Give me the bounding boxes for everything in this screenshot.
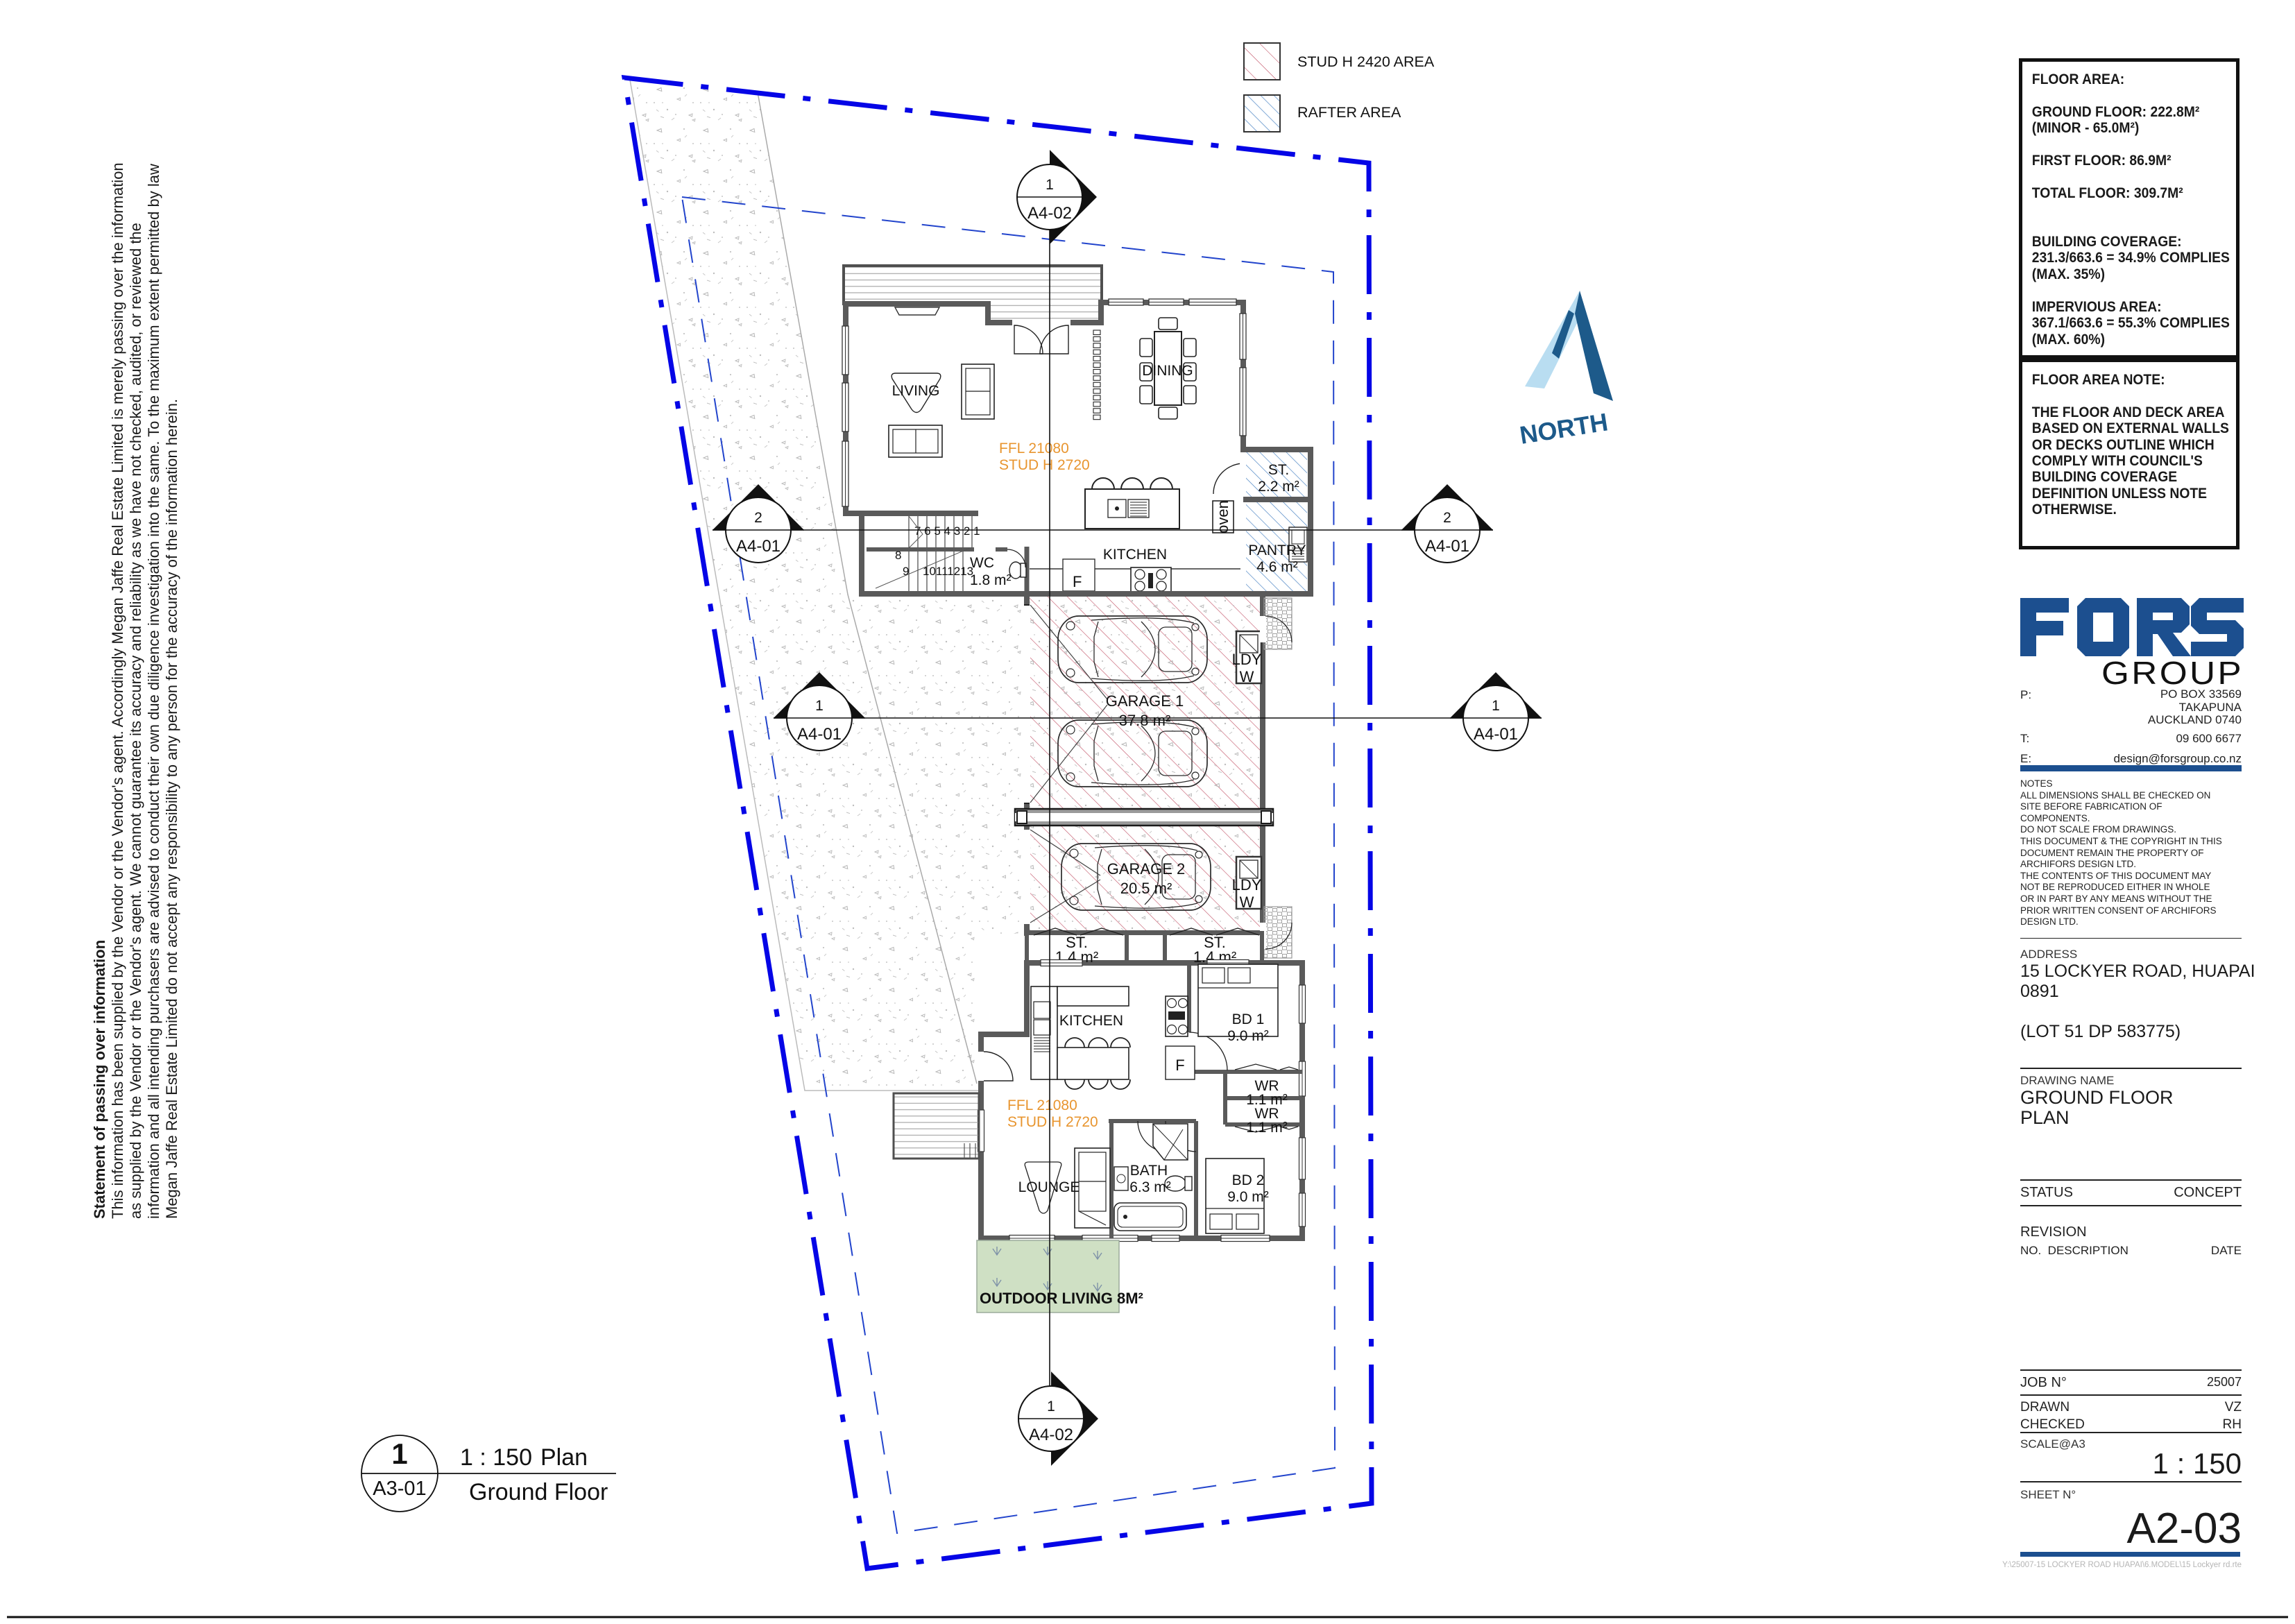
svg-text:KITCHEN: KITCHEN — [1103, 547, 1167, 563]
svg-text:9.0 m²: 9.0 m² — [1227, 1028, 1269, 1044]
svg-text:A4-01: A4-01 — [1474, 725, 1518, 744]
svg-text:STUD H 2720: STUD H 2720 — [1007, 1114, 1098, 1130]
svg-text:1: 1 — [1492, 698, 1500, 714]
svg-text:9.0 m²: 9.0 m² — [1227, 1189, 1269, 1205]
svg-text:2: 2 — [1443, 510, 1451, 526]
svg-text:1.1 m²: 1.1 m² — [1246, 1120, 1288, 1136]
svg-text:GARAGE 1: GARAGE 1 — [1106, 692, 1184, 710]
svg-text:2.2 m²: 2.2 m² — [1258, 479, 1299, 495]
svg-text:FFL 21080: FFL 21080 — [999, 441, 1069, 456]
svg-text:LDY: LDY — [1232, 876, 1262, 894]
svg-text:1: 1 — [391, 1437, 407, 1470]
svg-text:A4-02: A4-02 — [1027, 204, 1072, 223]
svg-text:GROUP: GROUP — [2101, 655, 2244, 691]
svg-text:1: 1 — [1046, 177, 1054, 193]
svg-text:LIVING: LIVING — [892, 383, 940, 399]
svg-text:A3-01: A3-01 — [373, 1478, 426, 1500]
svg-text:A4-01: A4-01 — [736, 537, 780, 556]
svg-text:1: 1 — [815, 698, 824, 714]
svg-text:KITCHEN: KITCHEN — [1059, 1013, 1123, 1029]
svg-text:OUTDOOR LIVING 8M²: OUTDOOR LIVING 8M² — [980, 1290, 1143, 1307]
svg-text:BD 2: BD 2 — [1232, 1172, 1265, 1188]
svg-text:NORTH: NORTH — [1518, 407, 1610, 450]
svg-text:1: 1 — [1047, 1399, 1055, 1414]
svg-text:9: 9 — [903, 565, 909, 578]
svg-text:20.5 m²: 20.5 m² — [1120, 880, 1172, 897]
svg-text:A4-01: A4-01 — [1425, 537, 1469, 556]
svg-text:6.3 m²: 6.3 m² — [1129, 1179, 1171, 1195]
svg-text:10111213: 10111213 — [923, 565, 973, 578]
svg-text:W: W — [1240, 894, 1254, 911]
svg-text:A4-01: A4-01 — [797, 725, 842, 744]
svg-text:RAFTER AREA: RAFTER AREA — [1297, 104, 1401, 121]
svg-text:2: 2 — [754, 510, 762, 526]
svg-text:STUD H 2420 AREA: STUD H 2420 AREA — [1297, 53, 1435, 70]
svg-text:F: F — [1073, 573, 1082, 590]
svg-text:7 6 5 4 3 2 1: 7 6 5 4 3 2 1 — [914, 524, 980, 538]
svg-text:BD 1: BD 1 — [1232, 1011, 1265, 1027]
svg-text:oven: oven — [1214, 500, 1231, 533]
svg-text:WC: WC — [970, 555, 994, 571]
svg-text:BATH: BATH — [1130, 1163, 1168, 1179]
svg-text:LDY: LDY — [1232, 651, 1262, 668]
svg-text:ST.: ST. — [1268, 462, 1289, 478]
svg-text:STUD H 2720: STUD H 2720 — [999, 457, 1090, 473]
svg-text:8: 8 — [895, 549, 901, 562]
svg-text:1 : 150: 1 : 150 — [460, 1444, 532, 1471]
svg-text:Plan: Plan — [540, 1444, 588, 1471]
svg-text:1.8 m²: 1.8 m² — [970, 572, 1012, 588]
svg-text:W: W — [1240, 668, 1254, 685]
svg-text:DINING: DINING — [1142, 363, 1193, 379]
svg-text:Ground Floor: Ground Floor — [469, 1479, 608, 1505]
svg-text:FFL 21080: FFL 21080 — [1007, 1097, 1077, 1113]
svg-text:LOUNGE: LOUNGE — [1018, 1179, 1080, 1195]
svg-text:F: F — [1175, 1057, 1184, 1074]
svg-text:37.8 m²: 37.8 m² — [1119, 712, 1171, 729]
svg-text:GARAGE 2: GARAGE 2 — [1107, 860, 1185, 878]
svg-text:4.6 m²: 4.6 m² — [1256, 559, 1298, 575]
svg-text:A4-02: A4-02 — [1029, 1426, 1073, 1444]
